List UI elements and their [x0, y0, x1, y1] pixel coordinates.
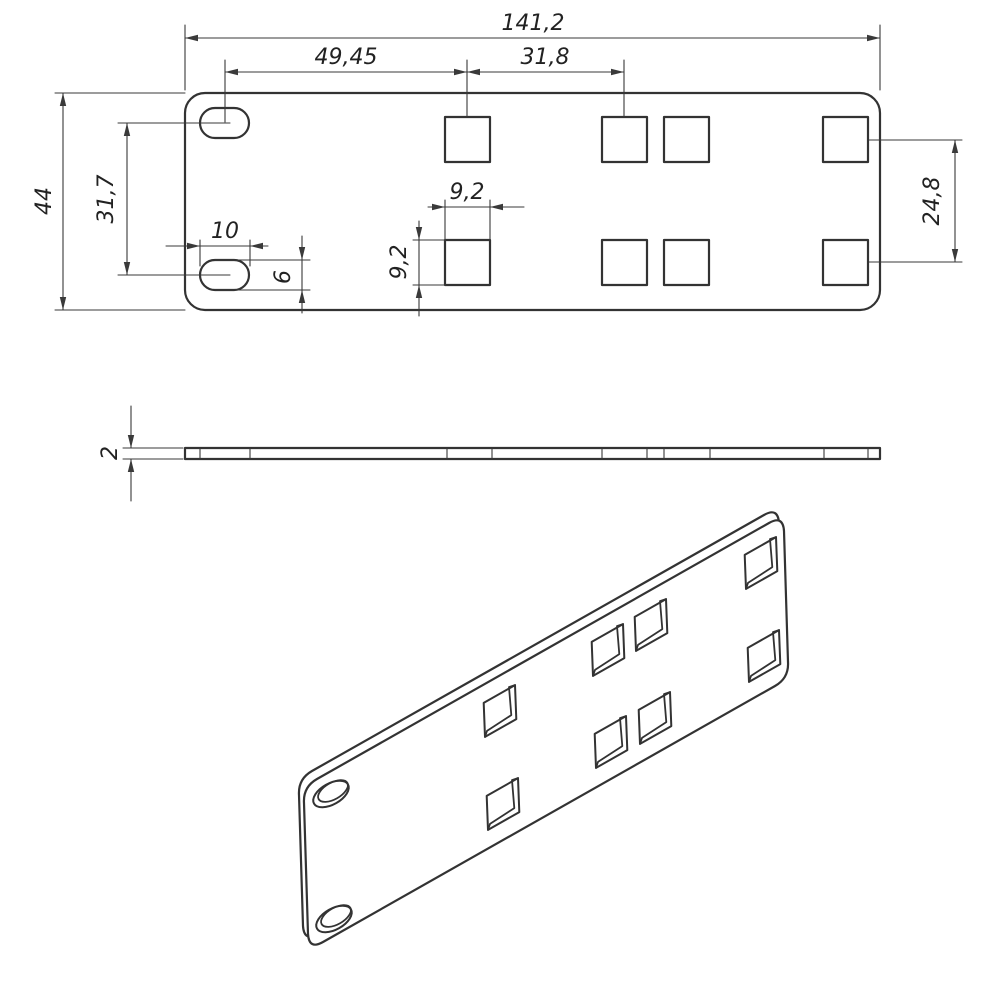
arrowhead — [952, 249, 958, 262]
arrowhead — [128, 459, 134, 472]
dim-thickness: 2 — [98, 406, 183, 501]
iso-plate-top-face — [304, 520, 788, 944]
arrowhead — [124, 123, 130, 136]
dim-label-slot-to-first-hole: 49,45 — [315, 45, 378, 70]
dim-right-hole-row-pitch: 24,8 — [869, 140, 962, 262]
dim-label-slot-row-pitch: 31,7 — [94, 175, 119, 224]
dim-label-right-hole-row-pitch: 24,8 — [920, 177, 945, 226]
arrowhead — [185, 35, 198, 41]
arrowhead — [454, 69, 467, 75]
dim-label-hole-height: 9,2 — [387, 245, 412, 280]
side-view: 2 — [98, 406, 880, 501]
technical-drawing-page: 141,2 49,45 31,8 44 — [0, 0, 1000, 1000]
dim-label-hole-width: 9,2 — [450, 180, 485, 205]
dim-label-slot-length: 10 — [211, 219, 239, 244]
arrowhead — [225, 69, 238, 75]
arrowhead — [611, 69, 624, 75]
dim-label-overall-width: 44 — [32, 187, 57, 215]
dim-label-overall-length: 141,2 — [502, 11, 565, 36]
side-profile — [185, 448, 880, 459]
top-view: 141,2 49,45 31,8 44 — [32, 11, 962, 316]
technical-drawing-canvas: 141,2 49,45 31,8 44 — [0, 0, 1000, 1000]
arrowhead — [124, 262, 130, 275]
dim-label-thickness: 2 — [98, 446, 123, 460]
isometric-view — [299, 512, 788, 944]
dim-label-slot-width: 6 — [271, 270, 296, 284]
arrowhead — [60, 297, 66, 310]
arrowhead — [867, 35, 880, 41]
arrowhead — [467, 69, 480, 75]
dim-label-hole-column-pitch: 31,8 — [521, 45, 570, 70]
arrowhead — [128, 435, 134, 448]
arrowhead — [952, 140, 958, 153]
arrowhead — [60, 93, 66, 106]
